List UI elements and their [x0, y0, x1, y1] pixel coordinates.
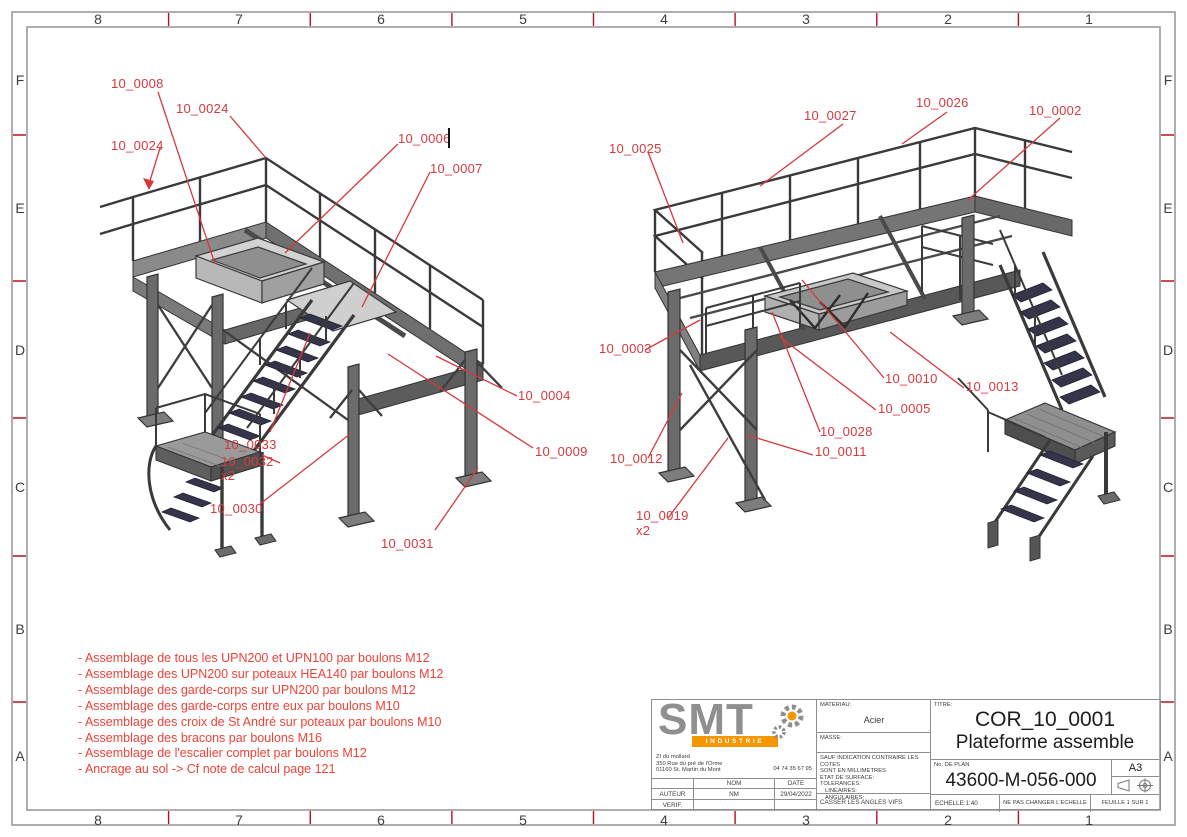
callout-label: 10_0027 — [804, 108, 857, 123]
projection-symbol-icon — [1112, 777, 1159, 794]
note-line: - Assemblage des garde-corps entre eux p… — [78, 699, 444, 715]
callout-label: x2 — [221, 468, 235, 483]
spec-column: MATERIAU: Acier MASSE: SAUF INDICATION C… — [817, 700, 931, 811]
scale-row: ECHELLE:1:40 NE PAS CHANGER L'ECHELLE FE… — [931, 794, 1159, 811]
company-address: ZI du mollard 350 Rue du pré de l'Orme 0… — [656, 754, 766, 774]
zone-col-top: 3 — [795, 11, 817, 27]
callout-label: 10_0031 — [381, 536, 434, 551]
callout-label: 10_0009 — [535, 444, 588, 459]
address-line: 01160 St. Martin du Mont — [656, 767, 766, 774]
note-line: - Assemblage des garde-corps sur UPN200 … — [78, 683, 444, 699]
zone-col-top: 8 — [87, 11, 109, 27]
callout-label: 10_0013 — [966, 379, 1019, 394]
spec-line: TOLERANCES: — [820, 781, 930, 788]
address-line: ZI du mollard — [656, 754, 766, 761]
table-header-nom: NOM — [694, 778, 775, 789]
zone-col-bottom: 7 — [228, 812, 250, 828]
projection-cell — [1112, 777, 1159, 794]
material-cell: MATERIAU: Acier — [817, 700, 931, 733]
note-line: - Ancrage au sol -> Cf note de calcul pa… — [78, 762, 444, 778]
right-view-drawing — [655, 128, 1120, 561]
note-line: - Assemblage des croix de St André sur p… — [78, 715, 444, 731]
zone-col-top: 2 — [937, 11, 959, 27]
title-column: TITRE: COR_10_0001 Plateforme assemble N… — [931, 700, 1159, 811]
material-label: MATERIAU: — [820, 702, 851, 709]
edges-note: CASSER LES ANGLES VIFS — [820, 799, 902, 806]
callout-label: 10_0002 — [1029, 103, 1082, 118]
callout-label: 10_0004 — [518, 388, 571, 403]
zone-row-right: A — [1160, 748, 1176, 764]
zone-col-top: 1 — [1078, 11, 1100, 27]
callout-label: x2 — [636, 523, 650, 538]
logo-industrie-banner: INDUSTRIE — [692, 736, 778, 747]
title-block: SMT INDUSTRIE ZI du mollard 350 Rue du p… — [651, 699, 1161, 810]
text-cursor — [448, 128, 450, 148]
zone-col-top: 5 — [512, 11, 534, 27]
zone-row-left: A — [12, 748, 28, 764]
callout-label: 10_0008 — [111, 76, 164, 91]
drawing-title-code: COR_10_0001 — [931, 708, 1159, 732]
zone-row-left: D — [12, 342, 28, 358]
assembly-notes: - Assemblage de tous les UPN200 et UPN10… — [78, 651, 444, 778]
zone-col-bottom: 6 — [370, 812, 392, 828]
callout-label: 10_0030 — [210, 501, 263, 516]
zone-col-top: 6 — [370, 11, 392, 27]
drawing-title-name: Plateforme assemble — [931, 732, 1159, 754]
mass-cell: MASSE: — [817, 733, 931, 753]
zone-row-right: C — [1160, 479, 1176, 495]
callout-label: 10_0032 — [221, 454, 274, 469]
scale-warning-cell: NE PAS CHANGER L'ECHELLE — [999, 795, 1091, 812]
table-verif-nom — [694, 800, 775, 811]
table-verif-label: VERIF. — [652, 800, 694, 811]
zone-row-left: E — [12, 200, 28, 216]
company-logo: SMT INDUSTRIE — [656, 701, 814, 753]
table-auteur-date: 29/04/2022 — [775, 789, 817, 800]
callout-label: 10_0011 — [815, 444, 867, 459]
callout-label: 10_0033 — [224, 437, 277, 452]
plan-number-cell: No. DE PLAN 43600-M-056-000 — [931, 760, 1112, 794]
table-auteur-label: AUTEUR — [652, 789, 694, 800]
note-line: - Assemblage des bracons par boulons M16 — [78, 731, 444, 747]
callout-label: 10_0006 — [398, 131, 451, 146]
leader-arrowhead — [143, 178, 154, 190]
company-cell: SMT INDUSTRIE ZI du mollard 350 Rue du p… — [652, 700, 817, 811]
callout-label: 10_0003 — [599, 341, 652, 356]
signature-table: NOM DATE AUTEUR NM 29/04/2022 VERIF. — [652, 778, 817, 811]
note-line: - Assemblage de tous les UPN200 et UPN10… — [78, 651, 444, 667]
table-verif-date — [775, 800, 817, 811]
callout-label: 10_0019 — [636, 508, 689, 523]
callout-label: 10_0024 — [111, 138, 164, 153]
callout-label: 10_0026 — [916, 95, 969, 110]
table-cell — [652, 778, 694, 789]
spec-line: SONT EN MILLIMETRES — [820, 768, 930, 775]
zone-row-right: E — [1160, 200, 1176, 216]
tolerance-notes: SAUF INDICATION CONTRAIRE LES COTES SONT… — [817, 753, 931, 793]
callout-label: 10_0028 — [820, 424, 873, 439]
zone-col-bottom: 2 — [937, 812, 959, 828]
note-line: - Assemblage de l'escalier complet par b… — [78, 746, 444, 762]
table-header-date: DATE — [775, 778, 817, 789]
zone-row-left: C — [12, 479, 28, 495]
title-cell: TITRE: COR_10_0001 Plateforme assemble — [931, 700, 1159, 760]
address-line: 350 Rue du pré de l'Orme — [656, 761, 766, 768]
scale-cell: ECHELLE:1:40 — [931, 795, 999, 812]
zone-row-left: B — [12, 621, 28, 637]
callout-label: 10_0005 — [878, 401, 931, 416]
edges-note-cell: CASSER LES ANGLES VIFS — [817, 793, 931, 811]
zone-col-bottom: 1 — [1078, 812, 1100, 828]
zone-col-bottom: 8 — [87, 812, 109, 828]
zone-row-right: D — [1160, 342, 1176, 358]
gear-icon — [768, 701, 814, 749]
material-value: Acier — [817, 715, 931, 725]
zone-row-right: B — [1160, 621, 1176, 637]
sheet-number-cell: FEUILLE 1 SUR 1 — [1091, 795, 1159, 812]
spec-line: SAUF INDICATION CONTRAIRE LES COTES — [820, 755, 930, 768]
zone-row-right: F — [1160, 72, 1176, 88]
zone-col-bottom: 4 — [653, 812, 675, 828]
zone-row-left: F — [12, 72, 28, 88]
drawing-sheet: 8 7 6 5 4 3 2 1 8 7 6 5 4 3 2 1 F E D C … — [0, 0, 1187, 837]
zone-col-top: 4 — [653, 11, 675, 27]
callout-label: 10_0007 — [430, 161, 483, 176]
callout-label: 10_0024 — [176, 101, 229, 116]
callout-label: 10_0012 — [610, 451, 663, 466]
plan-number-label: No. DE PLAN — [934, 762, 969, 769]
spec-line: ETAT DE SURFACE: — [820, 775, 930, 782]
company-phone: 04 74 35 67 95 — [773, 766, 812, 773]
left-view-drawing — [100, 158, 502, 557]
mass-label: MASSE: — [820, 735, 842, 742]
callout-label: 10_0010 — [885, 371, 938, 386]
callout-label: 10_0025 — [609, 141, 662, 156]
plan-number-value: 43600-M-056-000 — [931, 770, 1111, 792]
note-line: - Assemblage des UPN200 sur poteaux HEA1… — [78, 667, 444, 683]
table-auteur-nom: NM — [694, 789, 775, 800]
zone-col-bottom: 5 — [512, 812, 534, 828]
zone-col-bottom: 3 — [795, 812, 817, 828]
zone-col-top: 7 — [228, 11, 250, 27]
format-cell: A3 — [1112, 760, 1159, 777]
